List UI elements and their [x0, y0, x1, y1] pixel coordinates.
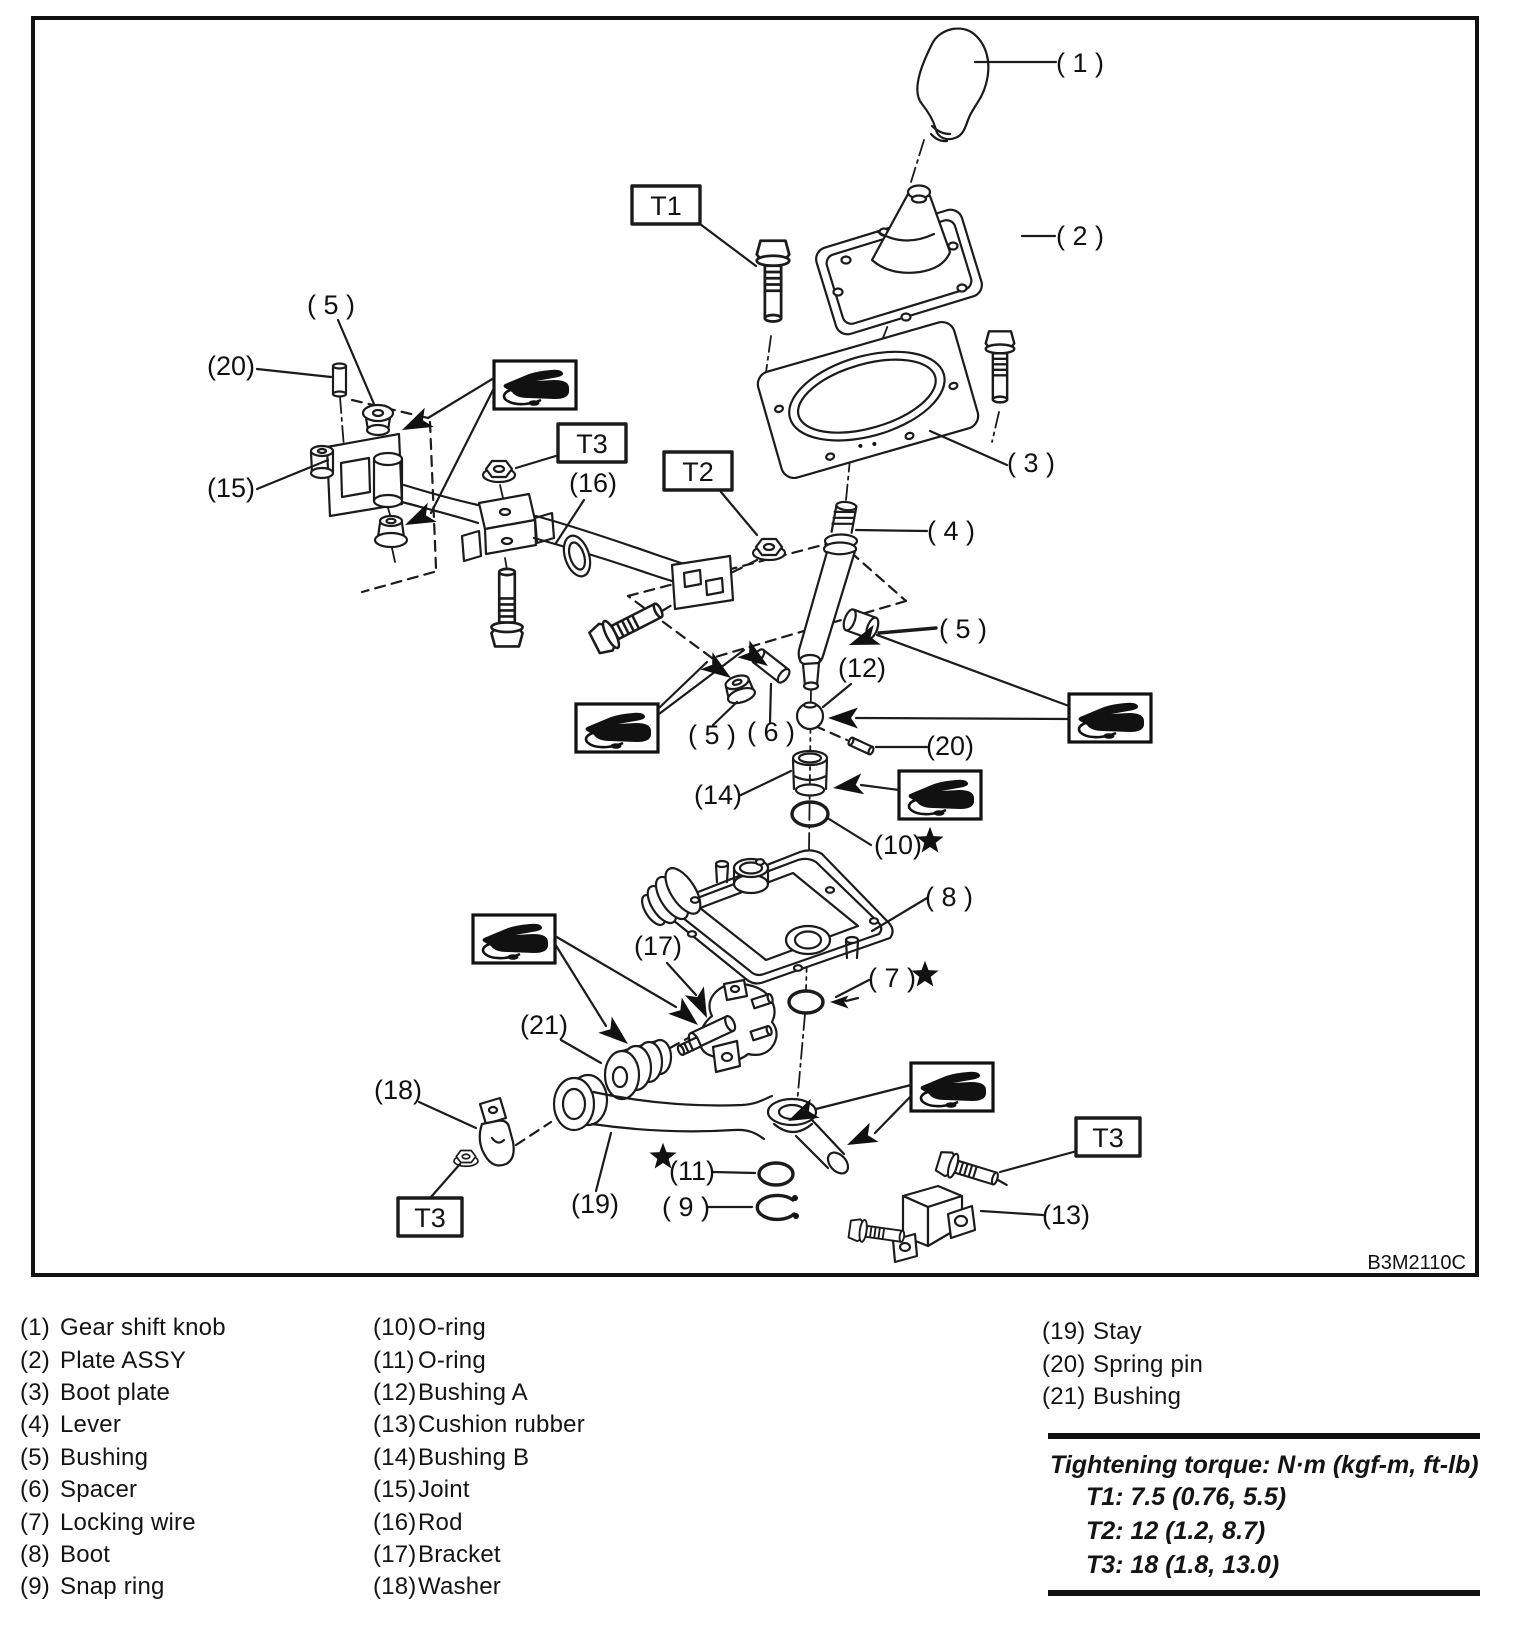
figure-code: B3M2110C — [1367, 1252, 1466, 1274]
callout-9: ( 9 ) — [662, 1192, 710, 1222]
boot-part — [633, 850, 893, 983]
torque-ref-t3: T3 — [576, 429, 608, 459]
legend-item-label: Boot — [60, 1541, 110, 1569]
callout-16: (16) — [569, 468, 617, 498]
legend-item-label: Plate ASSY — [60, 1347, 186, 1375]
snap-ring-part — [757, 1195, 799, 1219]
o-ring-11-part — [759, 1163, 793, 1185]
bushing-21-part — [605, 1040, 671, 1099]
bracket-part — [677, 980, 777, 1072]
torque-value-t3: T3: 18 (1.8, 13.0) — [1086, 1548, 1480, 1582]
callout-19: (19) — [571, 1189, 619, 1219]
legend-item-label: Cushion rubber — [418, 1411, 585, 1439]
bolt-t1 — [757, 241, 790, 322]
bolt-rod — [588, 596, 668, 656]
legend-item-num: (13) — [373, 1411, 418, 1439]
legend-item-num: (11) — [373, 1347, 418, 1375]
legend-item-label: Bracket — [418, 1541, 501, 1569]
legend-item-num: (9) — [20, 1573, 60, 1601]
legend-item-label: Bushing A — [418, 1379, 528, 1407]
legend-item: (8)Boot — [20, 1539, 226, 1571]
legend-item-label: Rod — [418, 1509, 463, 1537]
gear-shift-knob-part — [917, 29, 988, 142]
legend-item-num: (6) — [20, 1476, 60, 1504]
legend-item-num: (19) — [1042, 1318, 1093, 1346]
legend-item: (1)Gear shift knob — [20, 1312, 226, 1344]
nut-stay — [454, 1151, 478, 1167]
callout-12: (12) — [838, 653, 886, 683]
torque-value-t2: T2: 12 (1.2, 8.7) — [1086, 1514, 1480, 1548]
torque-ref-t1: T1 — [650, 191, 682, 221]
legend-item-num: (20) — [1042, 1351, 1093, 1379]
callout-7: ( 7 ) — [868, 963, 916, 993]
manual-page: B3M2110C — [0, 0, 1520, 1636]
grease-hand-icon — [473, 915, 555, 963]
legend-item-label: O-ring — [418, 1347, 486, 1375]
legend-item: (21)Bushing — [1042, 1381, 1203, 1413]
nut-joint — [483, 461, 515, 482]
legend-item: (20)Spring pin — [1042, 1348, 1203, 1380]
callout-2: ( 2 ) — [1056, 221, 1104, 251]
rod-part — [402, 485, 733, 609]
legend-item: (5)Bushing — [20, 1442, 226, 1474]
callout-15: (15) — [207, 473, 255, 503]
legend-item: (17)Bracket — [373, 1539, 585, 1571]
legend-item-label: Joint — [418, 1476, 470, 1504]
legend-item-num: (7) — [20, 1509, 60, 1537]
tightening-torque-title: Tightening torque: N·m (kgf-m, ft-lb) — [1050, 1451, 1480, 1480]
bolt-joint — [491, 569, 522, 647]
grease-hand-icon — [576, 704, 658, 752]
torque-boxes: T1 T2 T3 T3 T3 — [398, 186, 1140, 1236]
legend-item: (14)Bushing B — [373, 1442, 585, 1474]
callout-3: ( 3 ) — [1007, 448, 1055, 478]
legend-item-label: Bushing — [60, 1444, 148, 1472]
callout-14: (14) — [694, 780, 742, 810]
torque-ref-t3: T3 — [1092, 1123, 1124, 1153]
callout-10: (10) — [874, 830, 922, 860]
legend-item: (13)Cushion rubber — [373, 1409, 585, 1441]
legend-item-label: Bushing B — [418, 1444, 529, 1472]
callout-5: ( 5 ) — [307, 290, 355, 320]
torque-ref-t2: T2 — [682, 457, 714, 487]
legend-item: (3)Boot plate — [20, 1377, 226, 1409]
legend-item-num: (8) — [20, 1541, 60, 1569]
legend-item-num: (4) — [20, 1411, 60, 1439]
washer-part — [480, 1098, 514, 1165]
tightening-torque-box: Tightening torque: N·m (kgf-m, ft-lb) T1… — [1048, 1433, 1480, 1596]
joint-part — [311, 364, 407, 548]
legend-item-label: O-ring — [418, 1314, 486, 1342]
bolt-plate — [986, 331, 1015, 402]
callout-5: ( 5 ) — [939, 614, 987, 644]
legend-item-num: (3) — [20, 1379, 60, 1407]
torque-ref-t3: T3 — [414, 1203, 446, 1233]
locking-wire-part — [789, 991, 858, 1013]
legend-column-1: (1)Gear shift knob (2)Plate ASSY (3)Boot… — [20, 1312, 226, 1604]
exploded-diagram: B3M2110C — [0, 0, 1520, 1290]
legend-item-num: (2) — [20, 1347, 60, 1375]
legend-item: (16)Rod — [373, 1506, 585, 1538]
bolt-cushion-upper — [935, 1149, 1001, 1191]
callout-11: (11) — [669, 1156, 715, 1186]
callout-4: ( 4 ) — [927, 516, 975, 546]
legend-item: (7)Locking wire — [20, 1506, 226, 1538]
callout-6: ( 6 ) — [747, 717, 795, 747]
legend-item-label: Washer — [418, 1573, 501, 1601]
grease-hand-icon — [899, 771, 981, 819]
legend-item: (9)Snap ring — [20, 1571, 226, 1603]
legend-item-num: (12) — [373, 1379, 418, 1407]
grease-hand-icon — [494, 361, 576, 409]
legend-item: (6)Spacer — [20, 1474, 226, 1506]
legend-item-label: Bushing — [1093, 1383, 1181, 1411]
callout-8: ( 8 ) — [925, 882, 973, 912]
torque-value-t1: T1: 7.5 (0.76, 5.5) — [1086, 1480, 1480, 1514]
boot-plate-part — [755, 319, 981, 481]
legend-item-label: Lever — [60, 1411, 121, 1439]
callout-20: (20) — [926, 731, 974, 761]
legend-item-label: Stay — [1093, 1318, 1142, 1346]
callout-21: (21) — [520, 1010, 568, 1040]
legend-item: (18)Washer — [373, 1571, 585, 1603]
callout-1: ( 1 ) — [1056, 48, 1104, 78]
legend-item-label: Snap ring — [60, 1573, 165, 1601]
legend-item-num: (16) — [373, 1509, 418, 1537]
nut-t2 — [753, 539, 785, 560]
bushing-b-part — [793, 751, 827, 796]
legend-item-num: (5) — [20, 1444, 60, 1472]
legend-item-label: Boot plate — [60, 1379, 170, 1407]
legend-item-label: Spacer — [60, 1476, 137, 1504]
legend-item-label: Spring pin — [1093, 1351, 1203, 1379]
callout-18: (18) — [374, 1075, 422, 1105]
legend-column-3: (19)Stay (20)Spring pin (21)Bushing — [1042, 1316, 1203, 1413]
legend-item-num: (14) — [373, 1444, 418, 1472]
legend-item: (15)Joint — [373, 1474, 585, 1506]
legend-column-2: (10)O-ring (11)O-ring (12)Bushing A (13)… — [373, 1312, 585, 1604]
callout-5: ( 5 ) — [688, 720, 736, 750]
legend-item: (11)O-ring — [373, 1344, 585, 1376]
legend-item: (2)Plate ASSY — [20, 1344, 226, 1376]
legend-item-num: (18) — [373, 1573, 418, 1601]
legend-item-label: Locking wire — [60, 1509, 196, 1537]
legend-item: (4)Lever — [20, 1409, 226, 1441]
grease-hand-icon — [1069, 694, 1151, 742]
grease-hand-icon — [911, 1063, 993, 1111]
legend-item: (12)Bushing A — [373, 1377, 585, 1409]
legend-item-num: (17) — [373, 1541, 418, 1569]
plate-assy-part — [813, 186, 985, 338]
legend-item-num: (10) — [373, 1314, 418, 1342]
legend-item: (19)Stay — [1042, 1316, 1203, 1348]
legend-item-num: (1) — [20, 1314, 60, 1342]
callout-20: (20) — [207, 351, 255, 381]
cushion-rubber-part — [893, 1186, 975, 1262]
legend-item-num: (21) — [1042, 1383, 1093, 1411]
callout-17: (17) — [634, 931, 682, 961]
legend-item-label: Gear shift knob — [60, 1314, 226, 1342]
legend-item: (10)O-ring — [373, 1312, 585, 1344]
legend-item-num: (15) — [373, 1476, 418, 1504]
callout-13: (13) — [1042, 1200, 1090, 1230]
